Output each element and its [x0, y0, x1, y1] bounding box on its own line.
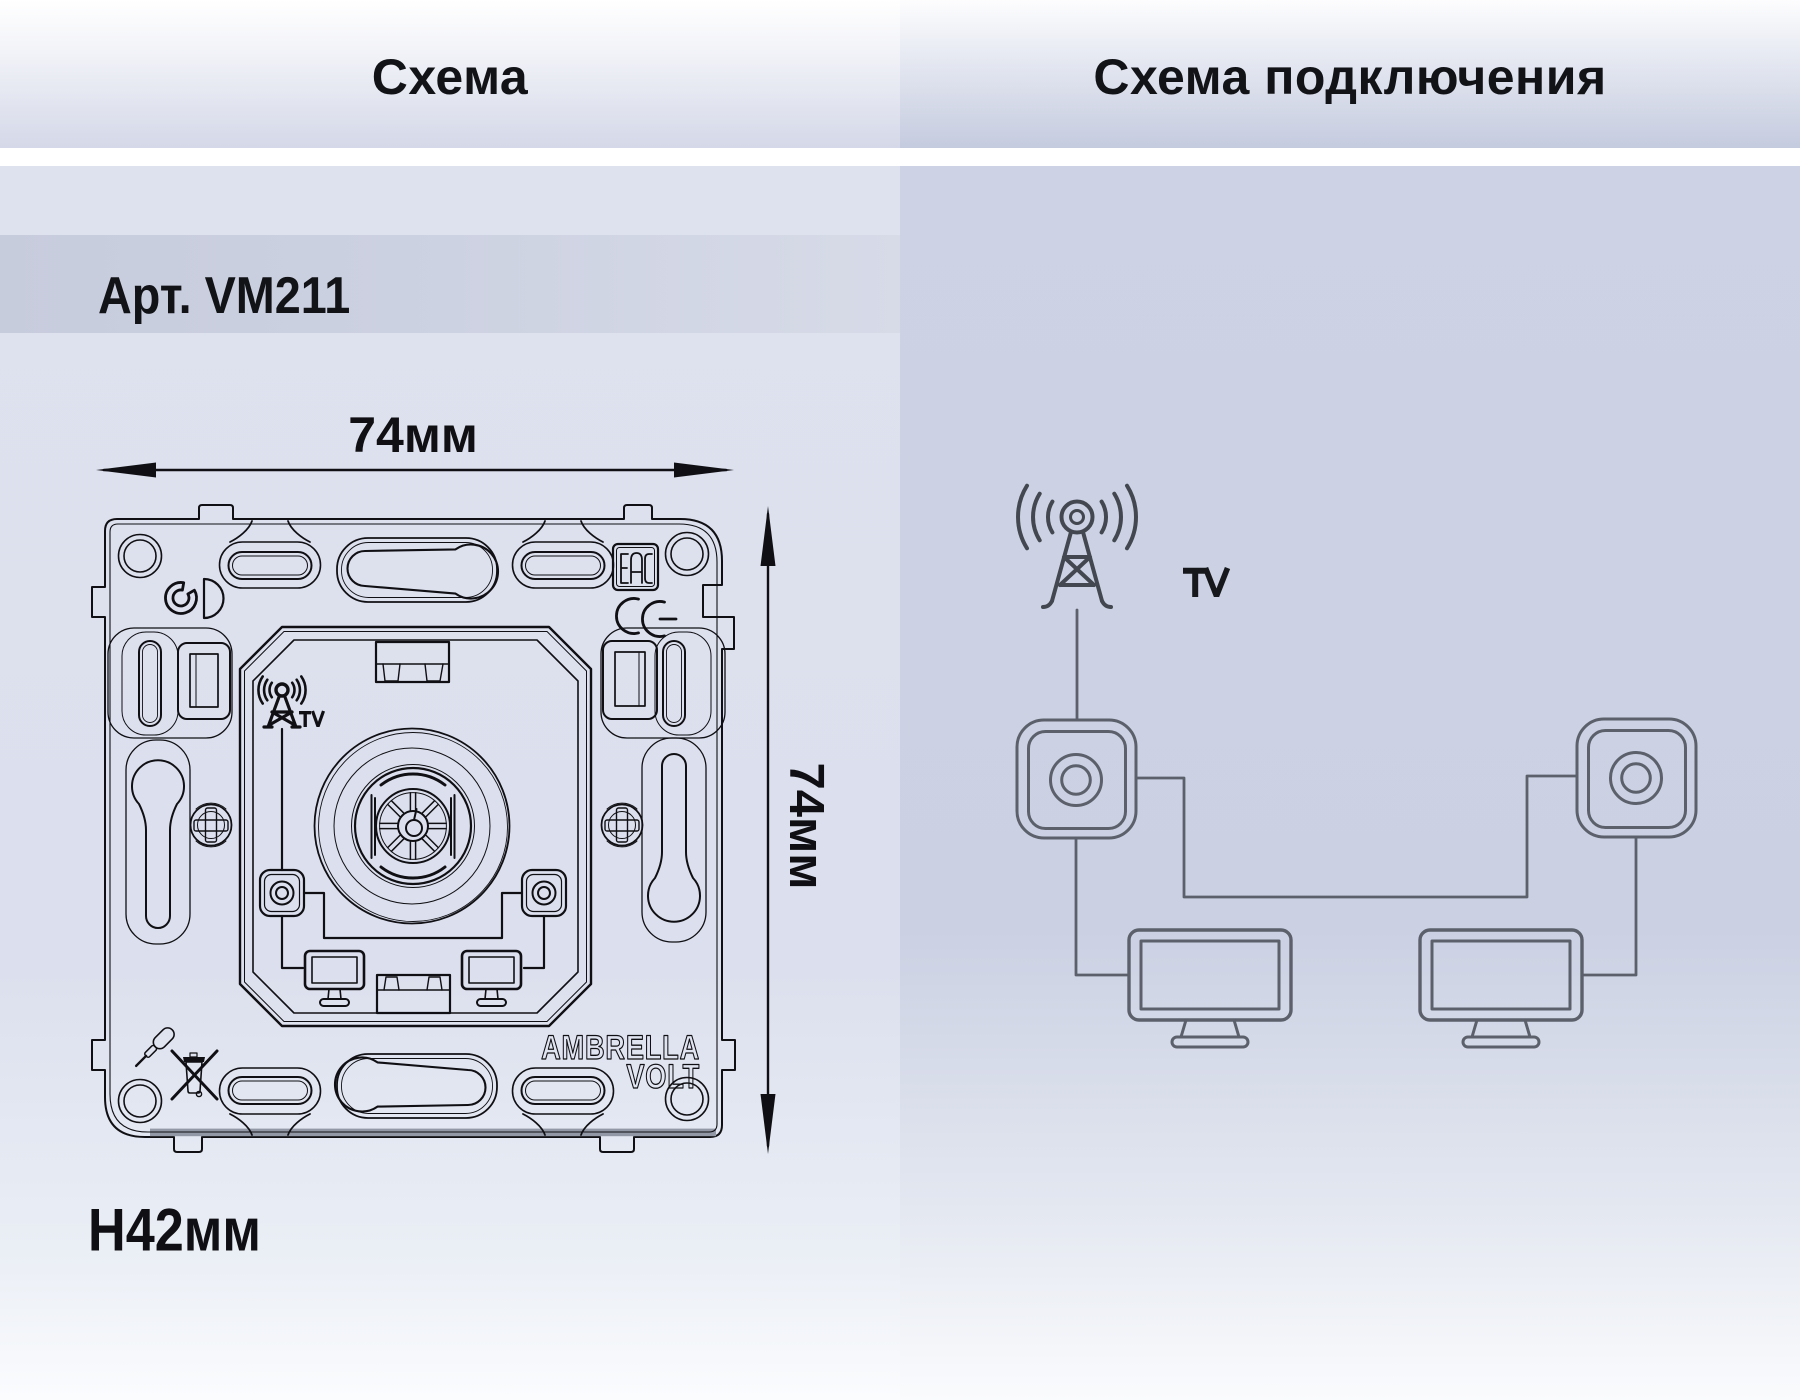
svg-text:74мм: 74мм	[779, 763, 833, 890]
svg-text:H42мм: H42мм	[88, 1196, 261, 1263]
svg-text:VOLT: VOLT	[626, 1057, 700, 1096]
svg-text:74мм: 74мм	[348, 407, 478, 463]
